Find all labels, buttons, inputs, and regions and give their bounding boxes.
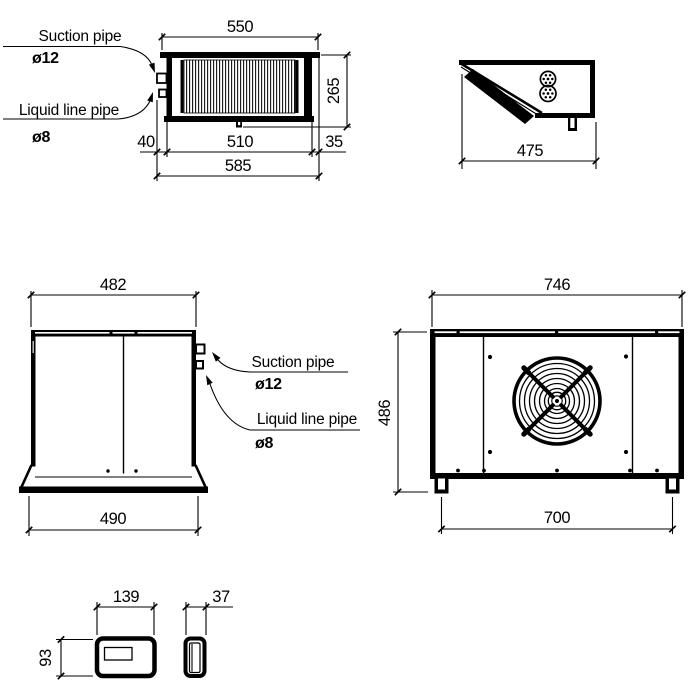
view-front: 746 486 700 (380, 270, 700, 550)
controller-front-housing (97, 639, 155, 677)
side-rail-joint (135, 332, 138, 334)
front-left-wall (430, 337, 436, 477)
profile-vent-top (540, 71, 555, 86)
side-skirt-base (19, 487, 208, 494)
side-left-wall (31, 337, 36, 467)
front-body (430, 329, 684, 494)
profile-vent-bottom (540, 86, 556, 102)
side-skirt-left (22, 465, 32, 487)
side-callout-liquid: Liquid line pipe ø8 (206, 375, 360, 452)
side-callout-suction: Suction pipe ø12 (212, 352, 348, 393)
dim-front-top-width: 746 (544, 276, 571, 294)
front-left-foot-slot (438, 479, 445, 490)
suction-diameter: ø12 (32, 50, 59, 67)
front-screw-dot (555, 469, 559, 473)
dim-right-offset: 35 (325, 133, 343, 151)
plan-left-wall (167, 58, 173, 116)
plan-coil-endplate-left (181, 60, 184, 113)
controller-side-inner (190, 643, 201, 673)
dim-depth: 475 (517, 142, 544, 160)
side-skirt-right (196, 465, 206, 487)
profile-bottom-rail (535, 113, 595, 118)
dim-controller-height: 93 (37, 649, 55, 667)
front-dim-486: 486 (376, 329, 428, 495)
front-screw-dot (624, 450, 628, 454)
fan-grille-icon (514, 358, 600, 444)
dim-side-bottom-width: 490 (100, 510, 127, 528)
view-controller: 139 37 93 (30, 585, 260, 700)
front-screw-dot (655, 469, 659, 473)
suction-pipe-label: Suction pipe (39, 28, 122, 45)
controller-display (105, 648, 133, 661)
view-side: 482 490 Suction pipe ø12 Liquid line pip… (0, 270, 380, 550)
plan-callout-liquid: Liquid line pipe ø8 (3, 92, 153, 146)
dim-side-top-width: 482 (100, 276, 127, 294)
side-top-rail-groove (35, 332, 192, 334)
controller-front (97, 639, 155, 677)
plan-dim-550: 550 (159, 18, 321, 50)
controller-dim-37: 37 (183, 588, 233, 635)
profile-top-panel (459, 60, 595, 65)
front-rail-joint (655, 331, 658, 334)
dim-height: 265 (325, 78, 343, 105)
liquid-pipe-label: Liquid line pipe (257, 411, 357, 428)
plan-top-flange (160, 52, 320, 58)
view-top-plan: Suction pipe ø12 Liquid line pipe ø8 550… (0, 0, 380, 200)
plan-callout-suction: Suction pipe ø12 (3, 28, 155, 73)
front-bottom-rail (430, 473, 684, 479)
suction-arrow-icon (212, 352, 221, 362)
side-suction-stub (196, 345, 205, 354)
front-screw-dot (624, 354, 628, 358)
profile-coil-band (464, 69, 534, 124)
front-screw-dot (488, 450, 492, 454)
side-liquid-stub (196, 361, 203, 369)
dim-feet-span: 700 (544, 509, 571, 527)
plan-liquid-stub (159, 90, 167, 98)
profile-body (459, 60, 595, 131)
technical-drawing-sheet: Suction pipe ø12 Liquid line pipe ø8 550… (0, 0, 700, 700)
side-left-wall-seam (33, 341, 34, 353)
liquid-arrow-icon (147, 92, 153, 102)
liquid-pipe-label: Liquid line pipe (19, 102, 119, 119)
plan-right-wall (304, 58, 312, 116)
dim-top-width: 550 (227, 18, 254, 36)
front-right-foot-slot (669, 479, 676, 490)
suction-pipe-label: Suction pipe (252, 354, 335, 371)
front-dim-746: 746 (429, 276, 685, 327)
plan-coil-endplate-right (296, 60, 299, 113)
view-rear-profile: 475 (430, 10, 700, 200)
front-screw-dot (456, 469, 460, 473)
front-dim-700: 700 (438, 497, 675, 534)
dim-body-width: 510 (227, 133, 254, 151)
suction-leader-line (3, 47, 152, 65)
plan-bottom-rail (164, 116, 314, 122)
dim-left-offset: 40 (137, 133, 155, 151)
suction-arrow-icon (149, 63, 155, 73)
dim-front-height: 486 (376, 400, 394, 427)
side-screw-dot (134, 469, 137, 472)
controller-dim-93: 93 (37, 636, 93, 679)
side-screw-dot (106, 469, 109, 472)
side-body (19, 330, 208, 493)
liquid-diameter: ø8 (32, 129, 50, 146)
profile-foot-slot (570, 118, 574, 128)
side-rail-joint (110, 332, 113, 334)
front-rail-joint (555, 331, 558, 334)
plan-body (157, 52, 320, 128)
plan-condenser-fins (184, 60, 295, 113)
suction-diameter: ø12 (255, 376, 282, 393)
side-right-wall (192, 337, 197, 467)
controller-dim-139: 139 (94, 588, 157, 635)
controller-side-housing (186, 639, 205, 677)
profile-right-wall (590, 60, 595, 118)
liquid-diameter: ø8 (255, 435, 273, 452)
plan-suction-stub (157, 74, 167, 84)
plan-drain-tab-slot (238, 122, 240, 125)
front-screw-dot (482, 469, 486, 473)
dim-controller-width: 139 (113, 588, 140, 606)
dim-total-width: 585 (225, 157, 252, 175)
side-dim-490: 490 (26, 496, 201, 536)
front-screw-dot (488, 355, 492, 359)
controller-side (186, 639, 205, 677)
dim-controller-depth: 37 (212, 588, 230, 606)
front-rail-joint (457, 331, 460, 334)
side-dim-482: 482 (28, 276, 199, 327)
front-right-wall (679, 337, 685, 477)
liquid-arrow-icon (206, 375, 213, 385)
front-screw-dot (628, 469, 632, 473)
